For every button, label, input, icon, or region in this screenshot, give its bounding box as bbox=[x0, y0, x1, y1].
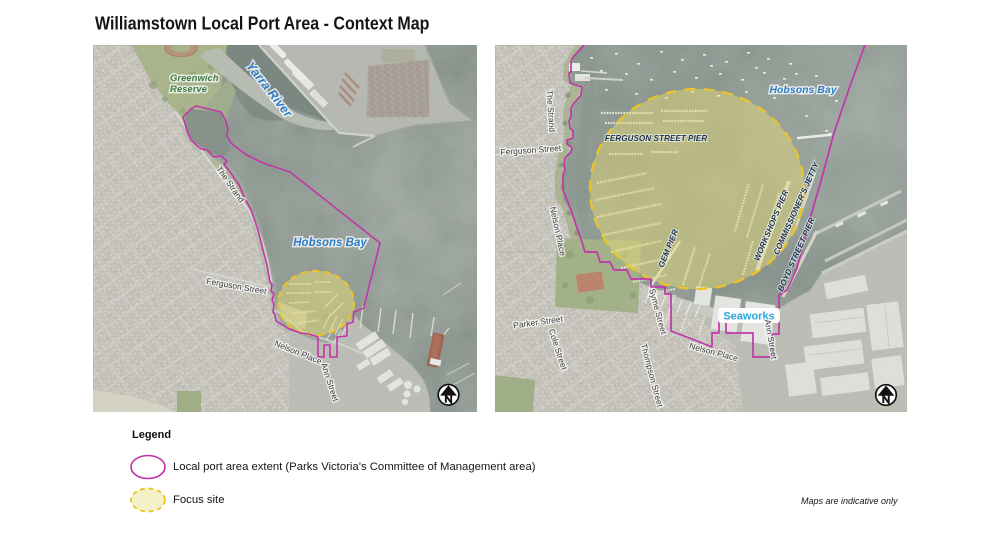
svg-text:Reserve: Reserve bbox=[170, 84, 208, 95]
svg-text:FERGUSON STREET PIER: FERGUSON STREET PIER bbox=[605, 134, 707, 143]
svg-text:Greenwich: Greenwich bbox=[170, 73, 219, 84]
svg-text:Hobsons Bay: Hobsons Bay bbox=[769, 84, 837, 96]
svg-text:Hobsons Bay: Hobsons Bay bbox=[293, 237, 367, 249]
